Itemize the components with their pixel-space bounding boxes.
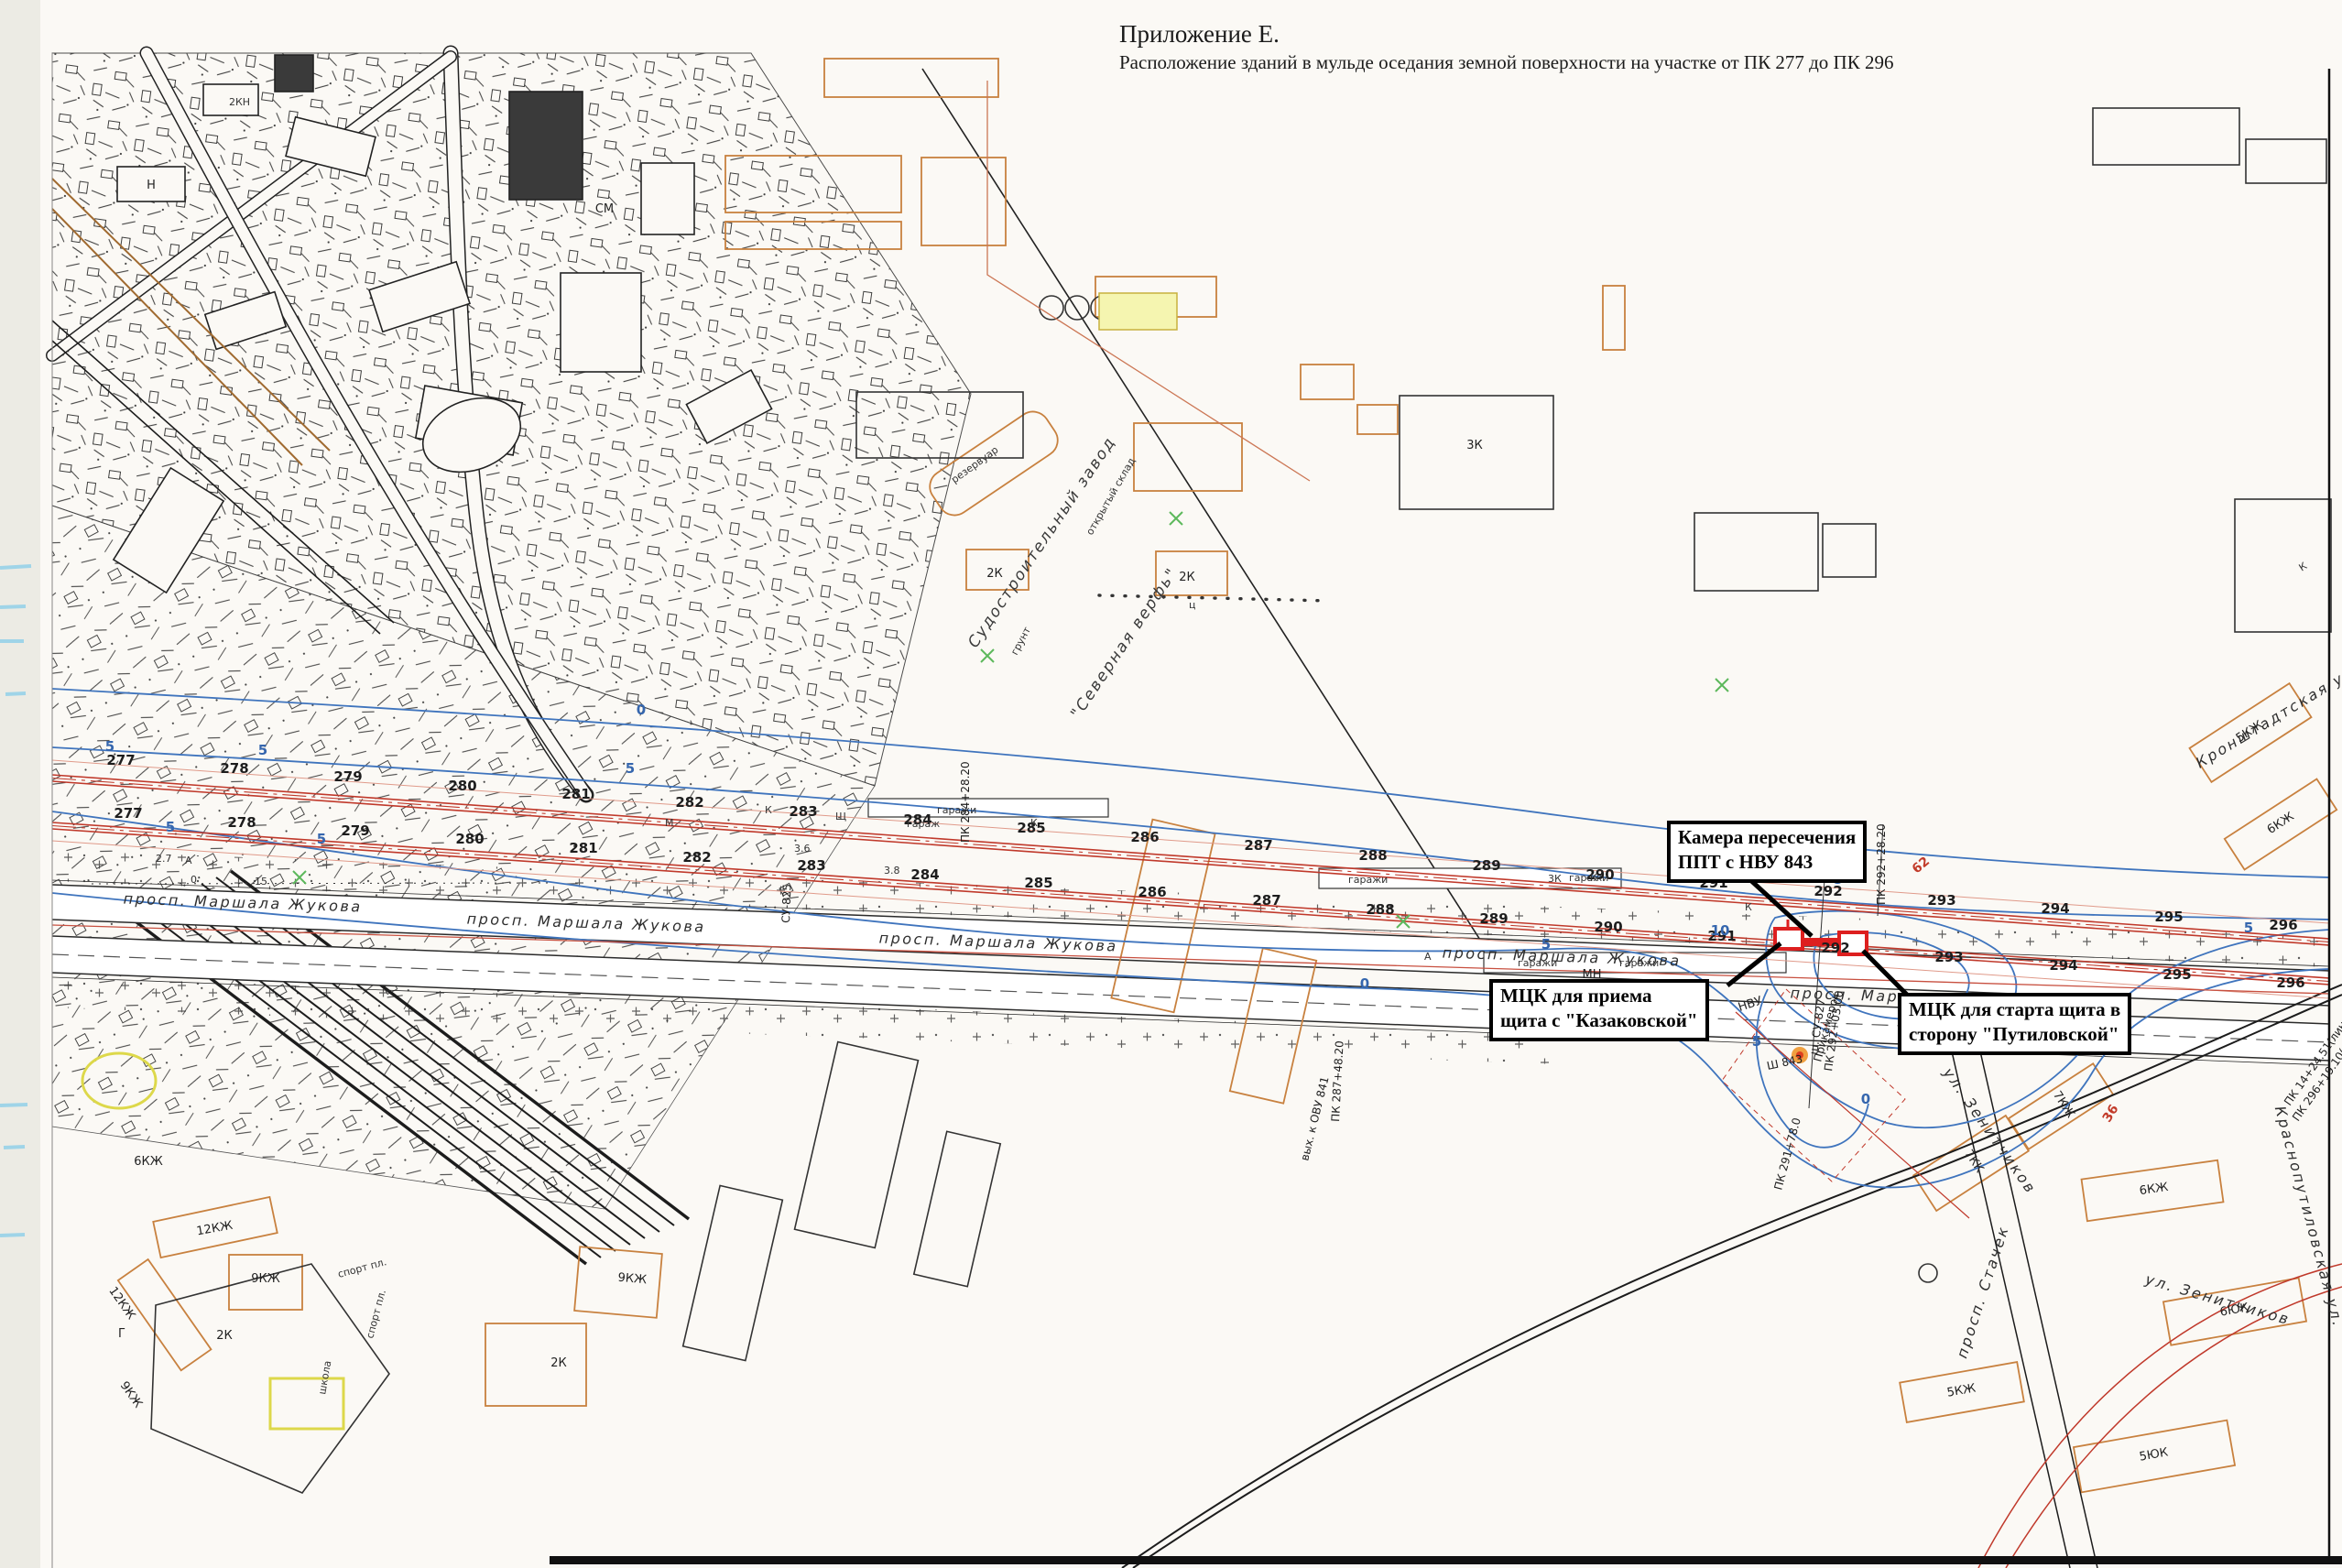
map-label: 280 (455, 831, 484, 847)
title-block: Приложение Е. Расположение зданий в муль… (1119, 20, 1893, 74)
map-label: 287 (1252, 892, 1280, 909)
map-label: Г (118, 1327, 125, 1341)
map-label: 296 (2276, 975, 2304, 991)
map-label: 281 (561, 786, 590, 802)
map-label: 2К (986, 567, 1003, 581)
map-label: А (185, 855, 192, 866)
map-label: 3.8 (884, 865, 900, 877)
yellow-highlight-block (1099, 293, 1177, 330)
map-label: 5 (258, 742, 267, 758)
map-label: гаражи (1619, 957, 1659, 969)
map-label: СМ (595, 202, 614, 216)
callout-start-line1: МЦК для старта щита в (1909, 997, 2120, 1022)
map-label: 286 (1138, 884, 1166, 900)
map-label: 0 (1861, 1091, 1870, 1107)
map-label: 5 (166, 819, 175, 835)
map-label: 279 (333, 768, 362, 785)
map-label: 295 (2154, 909, 2183, 925)
map-label: 5 (317, 831, 326, 847)
map-label: ц (1189, 599, 1196, 611)
map-label: гаражи (1518, 957, 1557, 969)
map-label: 5 (1752, 1033, 1761, 1050)
map-label: 290 (1594, 919, 1622, 935)
map-label: К (765, 804, 772, 816)
map-label: гаражи (1348, 874, 1388, 886)
map-label: 284 (910, 866, 939, 883)
map-label: Н (147, 179, 156, 192)
map-label: ПК 292+28.20 (1875, 823, 1888, 905)
map-label: 293 (1927, 892, 1955, 909)
map-label: 289 (1472, 857, 1500, 874)
callout-start-line2: сторону "Путиловской" (1909, 1022, 2120, 1047)
callout-receive-shaft-box: МЦК для приема щита с "Казаковской" (1489, 979, 1709, 1041)
map-label: 278 (227, 814, 256, 831)
map-label: 282 (675, 794, 703, 811)
map-label: 10 (1711, 922, 1730, 939)
map-label: 294 (2041, 900, 2069, 917)
map-label: 2КН (229, 96, 250, 108)
callout-camera-box: Камера пересечения ППТ с НВУ 843 (1667, 821, 1867, 883)
map-label: 2К (1179, 571, 1195, 584)
map-label: 293 (1934, 949, 1963, 965)
callout-camera-line2: ППТ с НВУ 843 (1678, 850, 1856, 875)
map-label: 288 (1358, 847, 1387, 864)
map-label: 292 (1821, 940, 1849, 956)
map-label: ПК 284+28.20 (959, 761, 972, 843)
page-title: Приложение Е. (1119, 20, 1893, 49)
map-label: 3К (1466, 439, 1483, 452)
map-label: 5 (2244, 920, 2253, 936)
map-label: 287 (1244, 837, 1272, 854)
map-label: 9КЖ (251, 1272, 280, 1286)
map-label: 6КЖ (134, 1155, 163, 1169)
map-label: 280 (448, 778, 476, 794)
map-label: 289 (1479, 910, 1508, 927)
map-label: 282 (682, 849, 711, 866)
callout-start-shaft-box: МЦК для старта щита в сторону "Путиловск… (1898, 993, 2131, 1055)
map-label: 294 (2049, 957, 2077, 974)
map-label: гаражи (1569, 872, 1608, 884)
callout-receive-line1: МЦК для приема (1500, 984, 1698, 1008)
map-label: 3К (1548, 873, 1562, 885)
map-label: 0 (191, 874, 197, 886)
map-label: 296 (2269, 917, 2297, 933)
map-label: 288 (1366, 901, 1394, 918)
site-plan-map: 2772782792802812822832842852862872882892… (0, 0, 2342, 1568)
scanned-site-plan: 2772782792802812822832842852862872882892… (0, 0, 2342, 1568)
map-label: 9КЖ (617, 1271, 648, 1288)
map-label: 295 (2162, 966, 2191, 983)
map-label: 286 (1130, 829, 1159, 845)
map-label: 2.7 (156, 853, 172, 865)
map-label: 283 (797, 857, 825, 874)
map-label: 277 (114, 805, 142, 822)
map-label: 279 (341, 822, 369, 839)
map-label: К (1030, 817, 1038, 829)
map-label: А (1424, 951, 1432, 963)
map-label: 2К (216, 1329, 233, 1343)
scan-strip (0, 0, 40, 1568)
map-label: 0 (1360, 975, 1369, 992)
map-label: К (1590, 872, 1597, 884)
map-label: СУ-825 (779, 884, 793, 923)
map-label: 5 (105, 738, 114, 755)
map-label: 3.6 (794, 843, 811, 855)
map-label: 15 (255, 876, 267, 887)
map-label: 5 (1541, 936, 1551, 953)
map-label: Щ (835, 811, 846, 822)
map-label: 285 (1024, 875, 1052, 891)
page-subtitle: Расположение зданий в мульде оседания зе… (1119, 51, 1893, 74)
map-label: 0 (637, 702, 646, 718)
map-label: 281 (569, 840, 597, 856)
map-label: гараж (907, 818, 940, 830)
map-label: 283 (789, 803, 817, 820)
callout-camera-line1: Камера пересечения (1678, 825, 1856, 850)
map-label: 5 (626, 760, 635, 777)
map-label: М (665, 817, 674, 829)
callout-receive-line2: щита с "Казаковской" (1500, 1008, 1698, 1033)
map-label: 278 (220, 760, 248, 777)
map-label: 2К (550, 1356, 567, 1370)
map-label: К (1745, 901, 1752, 913)
